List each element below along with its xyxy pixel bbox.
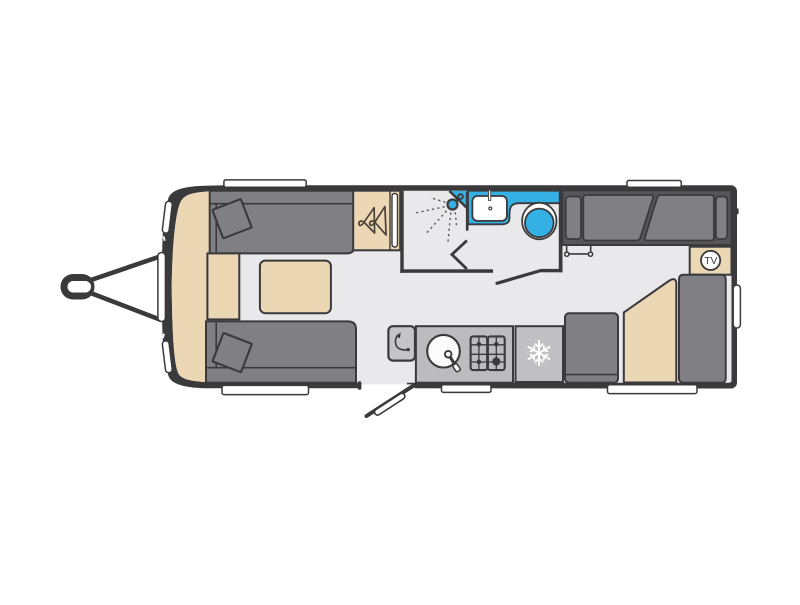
svg-text:TV: TV xyxy=(704,256,717,267)
